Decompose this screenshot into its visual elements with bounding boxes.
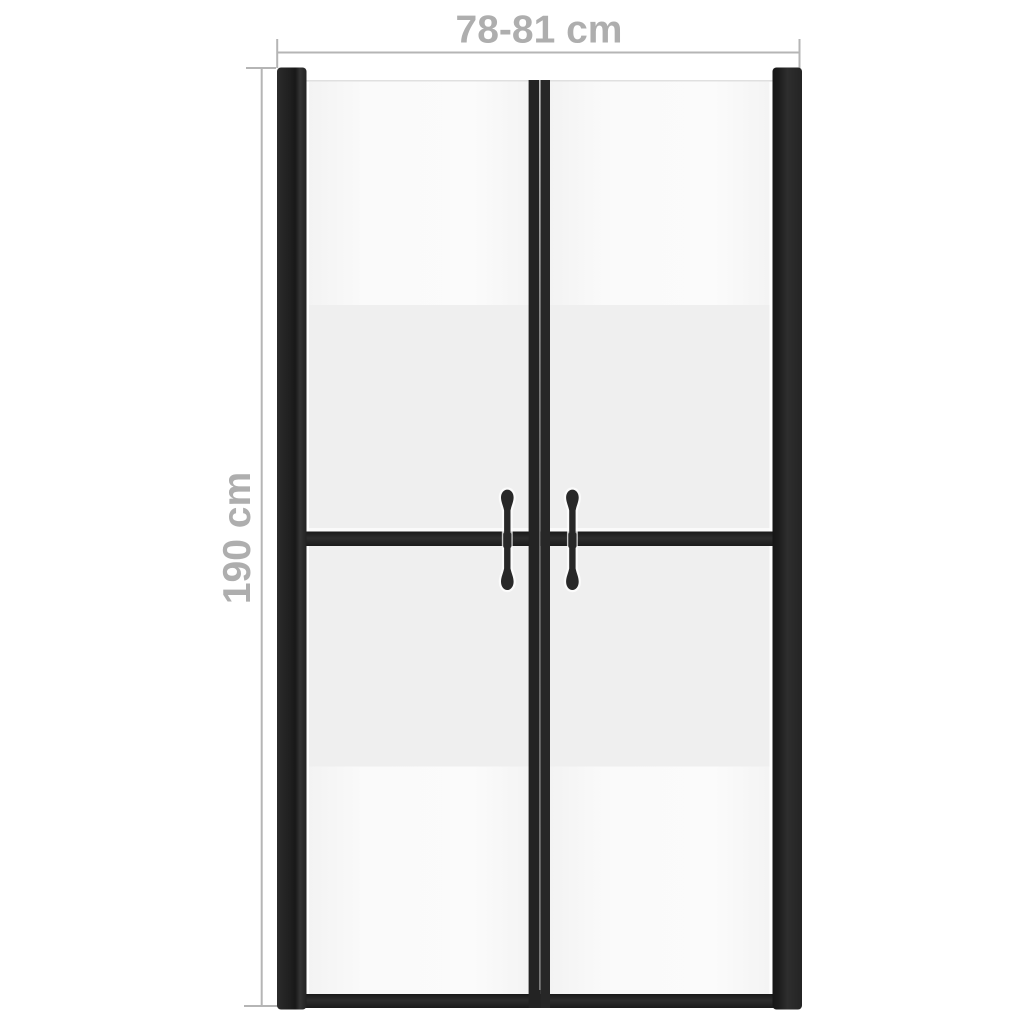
svg-text:190 cm: 190 cm xyxy=(216,472,259,604)
svg-text:78-81 cm: 78-81 cm xyxy=(456,9,623,52)
